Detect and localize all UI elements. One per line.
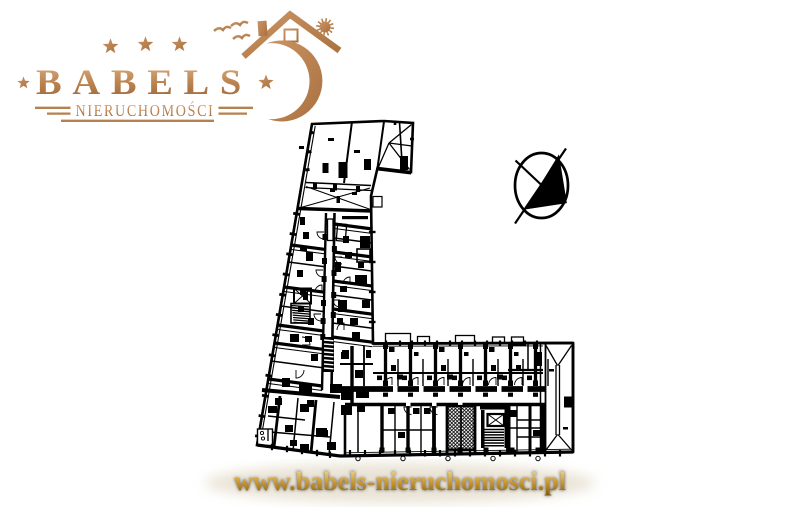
svg-text:www.babels-nieruchomosci.pl: www.babels-nieruchomosci.pl (234, 467, 566, 496)
svg-text:BABELS: BABELS (36, 62, 252, 102)
svg-text:NIERUCHOMOŚCI: NIERUCHOMOŚCI (76, 101, 215, 120)
